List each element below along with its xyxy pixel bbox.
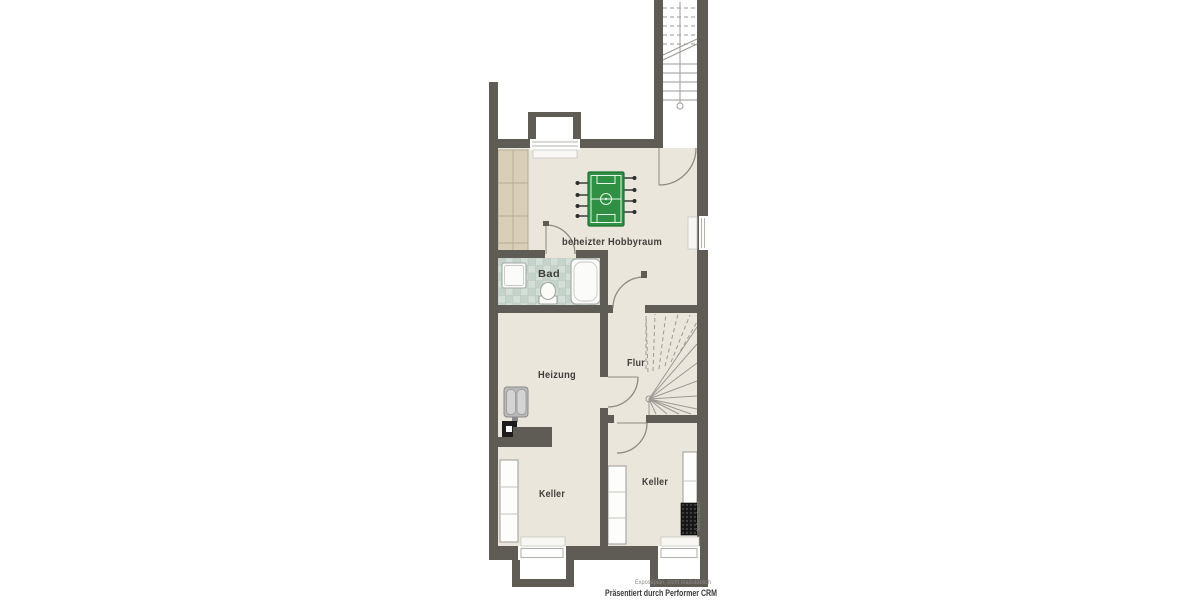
bathtub [571,259,600,304]
room-label-flur: Flur [627,357,645,369]
storage-shelf [608,466,626,544]
room-label-keller-left: Keller [539,488,565,500]
staircase-to-ground-floor [663,2,697,109]
exterior-wall-left [489,82,498,560]
room-label-keller-right: Keller [642,476,668,488]
disclaimer-text: Exposéplan, nicht maßstäblich [635,579,711,586]
room-label-hobby: beheizter Hobbyraum [562,236,662,248]
credit-text: Präsentiert durch Performer CRM [605,588,717,599]
toilet [539,283,557,305]
stair-shaft-wall [654,0,663,148]
floor-plan-svg: beheizter Hobbyraum Bad Heizung Flur Kel… [0,0,1200,600]
heating-boiler [504,387,528,422]
window [530,139,580,158]
side-caption: Kellerschacht [696,500,702,531]
shower-tray [502,263,526,288]
room-label-bad: Bad [538,268,560,280]
room-label-heizung: Heizung [538,369,576,381]
window [518,537,566,560]
built-in-cabinet [498,150,528,256]
exterior-wall-right [697,0,708,560]
window [658,537,700,560]
storage-shelf [500,460,518,542]
wine-rack [681,503,697,535]
bathroom [498,258,600,305]
storage-shelf [683,452,697,510]
floor-plan-page: beheizter Hobbyraum Bad Heizung Flur Kel… [0,0,1200,600]
